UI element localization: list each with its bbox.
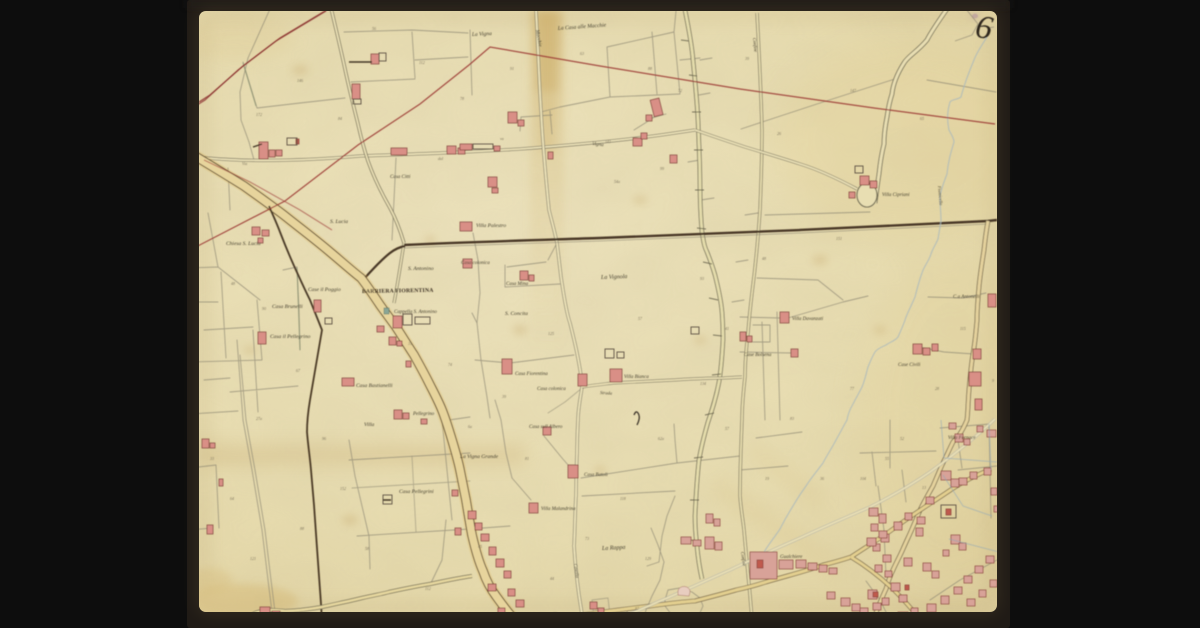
svg-text:Case il Poggio: Case il Poggio — [308, 287, 341, 293]
svg-text:151: 151 — [836, 236, 842, 241]
svg-text:54a: 54a — [614, 179, 620, 184]
svg-text:Villa Bianca: Villa Bianca — [624, 375, 649, 380]
svg-text:96: 96 — [322, 436, 326, 441]
svg-text:62a: 62a — [658, 436, 664, 441]
svg-text:S. Concita: S. Concita — [505, 311, 528, 317]
svg-text:31: 31 — [408, 341, 412, 346]
svg-text:141: 141 — [605, 139, 611, 144]
svg-text:Casa Pellegrini: Casa Pellegrini — [399, 489, 434, 495]
svg-text:va: va — [500, 136, 504, 141]
svg-text:Casa Bastianelli: Casa Bastianelli — [356, 383, 393, 389]
svg-text:48: 48 — [762, 256, 766, 261]
svg-text:S. Antonino: S. Antonino — [408, 266, 434, 272]
svg-text:125: 125 — [548, 331, 554, 336]
svg-text:65: 65 — [920, 116, 924, 121]
svg-text:56: 56 — [372, 26, 376, 31]
svg-text:91: 91 — [510, 66, 514, 71]
svg-text:129: 129 — [645, 556, 651, 561]
svg-text:Chiesa S. Lucia: Chiesa S. Lucia — [226, 241, 261, 247]
svg-text:45: 45 — [478, 544, 482, 549]
svg-text:134: 134 — [700, 381, 706, 386]
svg-text:78: 78 — [460, 96, 464, 101]
svg-text:112: 112 — [419, 60, 425, 65]
svg-text:Villa Davanzati: Villa Davanzati — [792, 317, 824, 322]
svg-text:73: 73 — [585, 536, 589, 541]
svg-text:26: 26 — [777, 131, 781, 136]
svg-text:115: 115 — [960, 326, 966, 331]
svg-text:Pellegrino: Pellegrino — [412, 412, 435, 417]
svg-text:Cappella S. Antonino: Cappella S. Antonino — [394, 310, 437, 315]
svg-text:La Vigna: La Vigna — [471, 31, 492, 38]
svg-text:C.a Antonelli: C.a Antonelli — [953, 295, 980, 300]
svg-text:Villa: Villa — [364, 422, 375, 428]
svg-text:39: 39 — [502, 394, 506, 399]
svg-text:44: 44 — [550, 576, 554, 581]
svg-text:Casa sull Albero: Casa sull Albero — [529, 425, 563, 430]
svg-text:dal: dal — [438, 156, 444, 161]
svg-text:74: 74 — [448, 362, 452, 367]
svg-text:27a: 27a — [256, 416, 262, 421]
svg-text:Villa Cipriani: Villa Cipriani — [882, 193, 910, 198]
svg-text:55: 55 — [885, 456, 889, 461]
svg-text:112: 112 — [425, 586, 431, 591]
svg-text:Casa il Pellegrino: Casa il Pellegrino — [270, 334, 311, 340]
svg-text:Casa Brunelli: Casa Brunelli — [272, 304, 303, 310]
svg-text:64: 64 — [230, 496, 234, 501]
svg-text:Casa Batoli: Casa Batoli — [584, 473, 608, 478]
svg-text:84: 84 — [338, 116, 342, 121]
svg-text:63: 63 — [580, 51, 584, 56]
svg-text:146: 146 — [297, 78, 303, 83]
svg-text:Casa Citti: Casa Citti — [390, 175, 411, 180]
svg-text:28: 28 — [935, 386, 939, 391]
svg-text:90: 90 — [262, 306, 266, 311]
svg-text:121: 121 — [250, 556, 256, 561]
svg-text:Villa Fornace: Villa Fornace — [948, 436, 976, 441]
svg-text:147: 147 — [850, 88, 857, 93]
svg-text:Case Civili: Case Civili — [898, 363, 921, 368]
svg-text:104: 104 — [860, 476, 866, 481]
svg-text:Casa Fiorentina: Casa Fiorentina — [515, 372, 548, 377]
svg-text:9: 9 — [992, 378, 994, 383]
svg-text:Casa colonica: Casa colonica — [461, 261, 490, 266]
svg-text:93: 93 — [700, 276, 704, 281]
svg-text:Gualchiere: Gualchiere — [780, 555, 803, 560]
svg-text:83: 83 — [790, 416, 794, 421]
svg-text:La Vignola: La Vignola — [600, 274, 628, 281]
svg-text:33: 33 — [210, 456, 214, 461]
svg-text:48: 48 — [231, 281, 235, 286]
svg-text:36: 36 — [820, 476, 824, 481]
svg-text:81: 81 — [525, 456, 529, 461]
svg-text:La Rappa: La Rappa — [601, 545, 626, 552]
svg-text:Casa Mina: Casa Mina — [506, 282, 529, 287]
svg-text:172: 172 — [256, 112, 262, 117]
svg-text:152: 152 — [340, 486, 346, 491]
svg-text:19: 19 — [765, 476, 769, 481]
svg-text:52: 52 — [900, 436, 904, 441]
svg-text:Villa Palestro: Villa Palestro — [476, 223, 506, 229]
svg-text:99: 99 — [660, 166, 664, 171]
svg-text:88: 88 — [300, 526, 304, 531]
svg-text:BARRIERA FIORENTINA: BARRIERA FIORENTINA — [362, 288, 434, 295]
svg-text:72: 72 — [678, 88, 682, 93]
svg-text:Casa colonica: Casa colonica — [537, 387, 566, 392]
svg-text:Strada: Strada — [600, 390, 613, 396]
svg-text:S. Lucia: S. Lucia — [330, 219, 348, 225]
svg-text:58: 58 — [365, 546, 369, 551]
svg-text:118: 118 — [620, 496, 626, 501]
svg-text:Case Bolsena: Case Bolsena — [744, 353, 772, 358]
svg-text:Villa Malandrina: Villa Malandrina — [541, 507, 576, 512]
svg-text:Via: Via — [242, 161, 247, 166]
svg-text:39: 39 — [745, 56, 749, 61]
svg-text:13: 13 — [922, 485, 926, 490]
svg-text:6a: 6a — [468, 424, 472, 429]
svg-text:41: 41 — [725, 326, 729, 331]
svg-text:88: 88 — [648, 66, 652, 71]
svg-text:La Vigna Grande: La Vigna Grande — [459, 454, 499, 460]
